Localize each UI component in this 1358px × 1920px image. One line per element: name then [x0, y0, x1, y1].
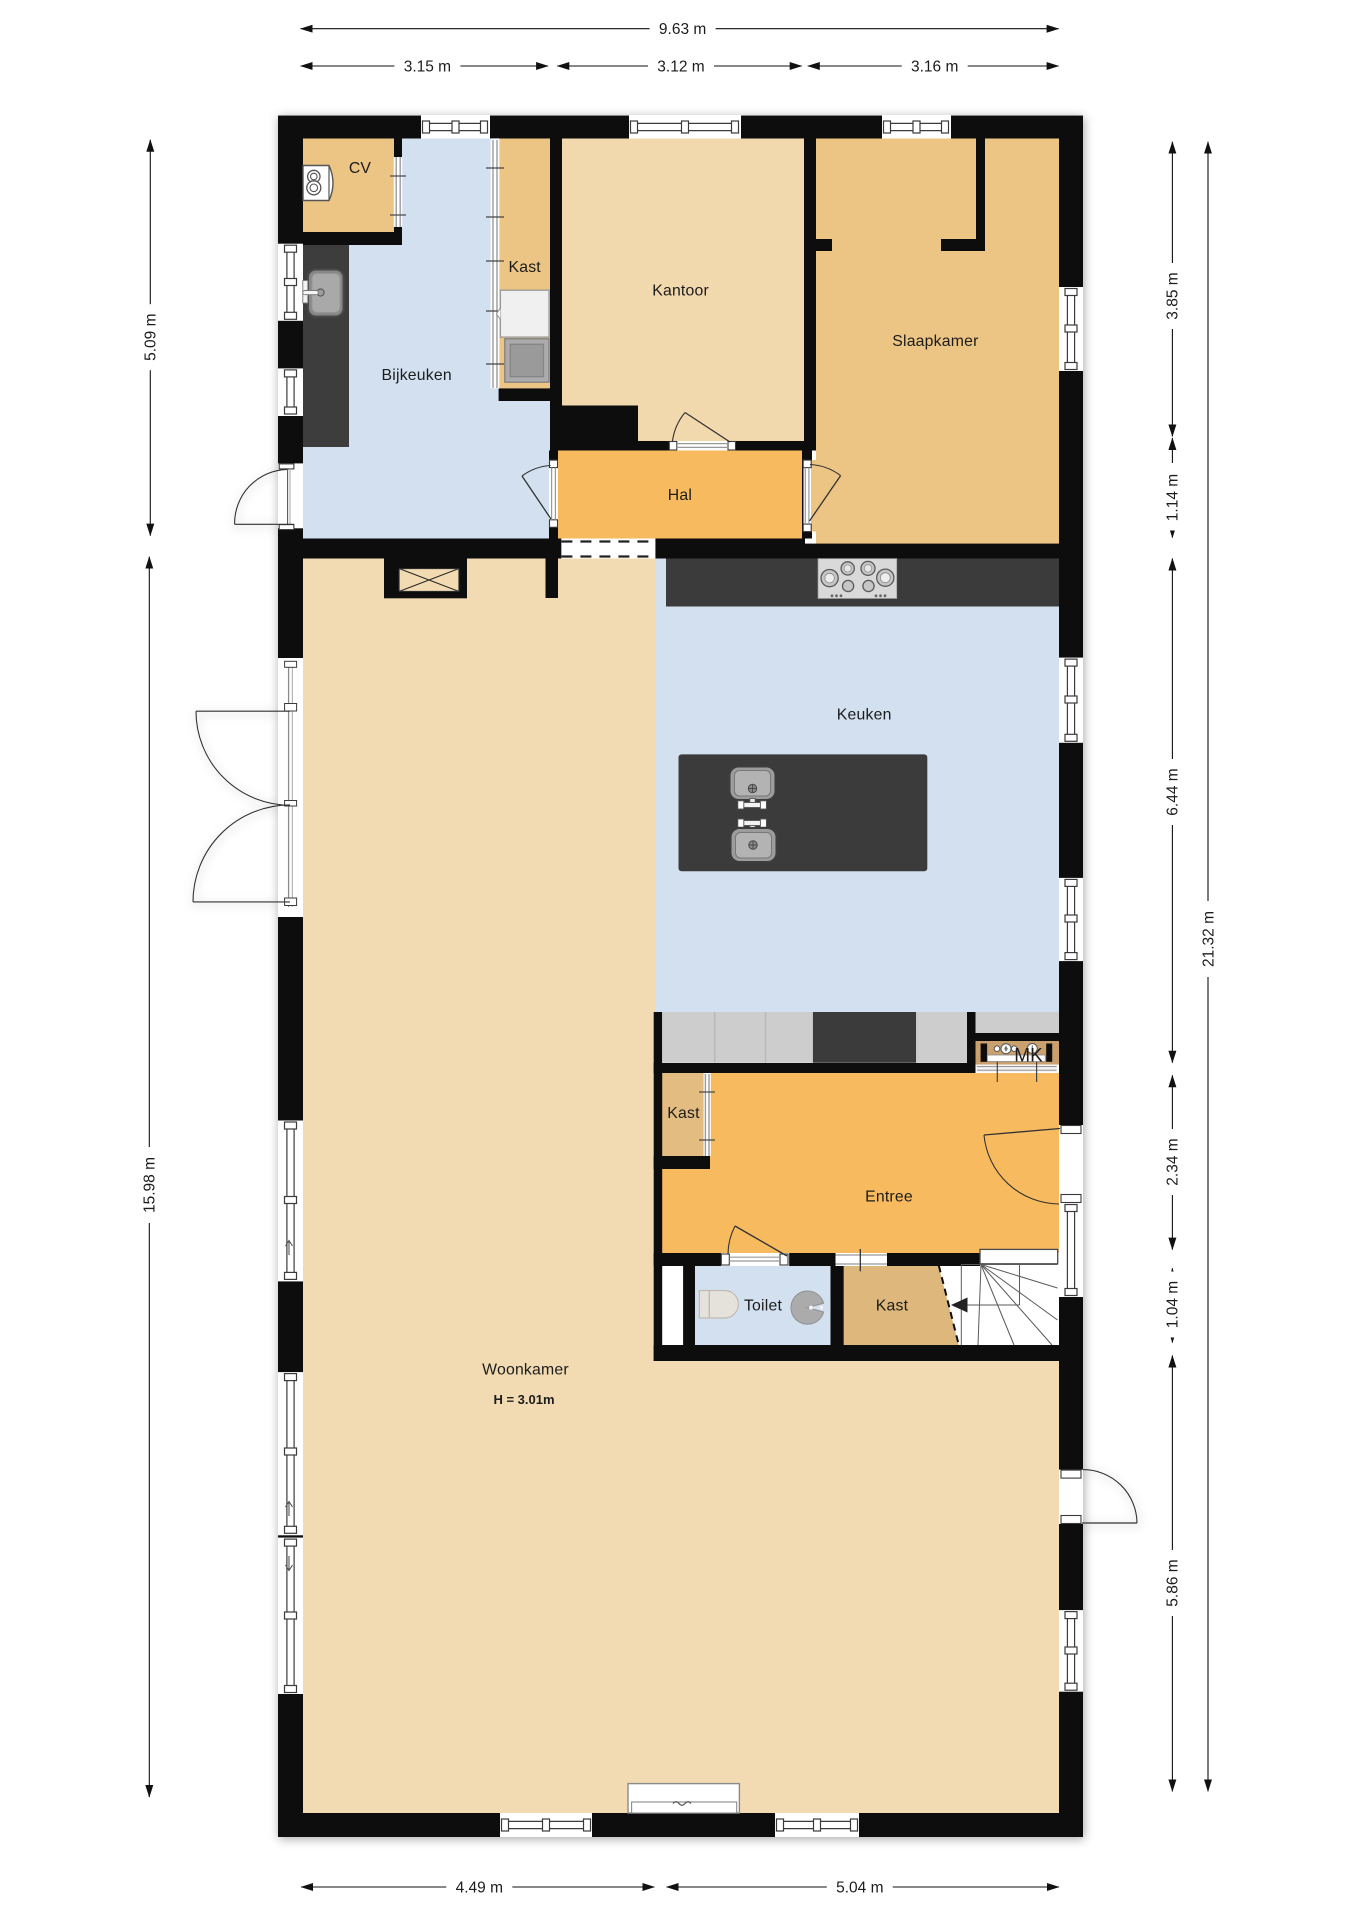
- svg-text:Keuken: Keuken: [837, 707, 892, 724]
- svg-text:4.49 m: 4.49 m: [456, 1879, 503, 1896]
- svg-text:15.98 m: 15.98 m: [142, 1157, 159, 1213]
- svg-text:5.09 m: 5.09 m: [143, 314, 160, 361]
- svg-text:3.12 m: 3.12 m: [657, 58, 704, 75]
- svg-text:Entree: Entree: [865, 1189, 913, 1206]
- svg-text:1.14 m: 1.14 m: [1165, 474, 1182, 521]
- svg-text:Bijkeuken: Bijkeuken: [382, 367, 452, 384]
- svg-text:5.04 m: 5.04 m: [836, 1879, 883, 1896]
- svg-text:H = 3.01m: H = 3.01m: [493, 1392, 554, 1407]
- svg-text:Kantoor: Kantoor: [652, 283, 709, 300]
- svg-text:6.44 m: 6.44 m: [1165, 768, 1182, 815]
- svg-text:2.34 m: 2.34 m: [1165, 1138, 1182, 1185]
- svg-text:5.86 m: 5.86 m: [1165, 1559, 1182, 1606]
- svg-text:21.32 m: 21.32 m: [1200, 911, 1217, 967]
- svg-text:Toilet: Toilet: [744, 1298, 782, 1315]
- svg-text:Kast: Kast: [667, 1105, 700, 1122]
- svg-text:3.16 m: 3.16 m: [911, 58, 958, 75]
- svg-text:Kast: Kast: [508, 259, 541, 276]
- svg-text:Slaapkamer: Slaapkamer: [892, 333, 978, 350]
- svg-text:9.63 m: 9.63 m: [659, 21, 706, 38]
- svg-text:Woonkamer: Woonkamer: [482, 1362, 569, 1379]
- svg-text:CV: CV: [349, 160, 372, 177]
- svg-text:3.85 m: 3.85 m: [1165, 272, 1182, 319]
- svg-text:1.04 m: 1.04 m: [1165, 1281, 1182, 1328]
- svg-text:Kast: Kast: [876, 1298, 909, 1315]
- svg-text:3.15 m: 3.15 m: [404, 58, 451, 75]
- svg-text:Hal: Hal: [668, 487, 692, 504]
- svg-text:MK: MK: [1014, 1046, 1043, 1067]
